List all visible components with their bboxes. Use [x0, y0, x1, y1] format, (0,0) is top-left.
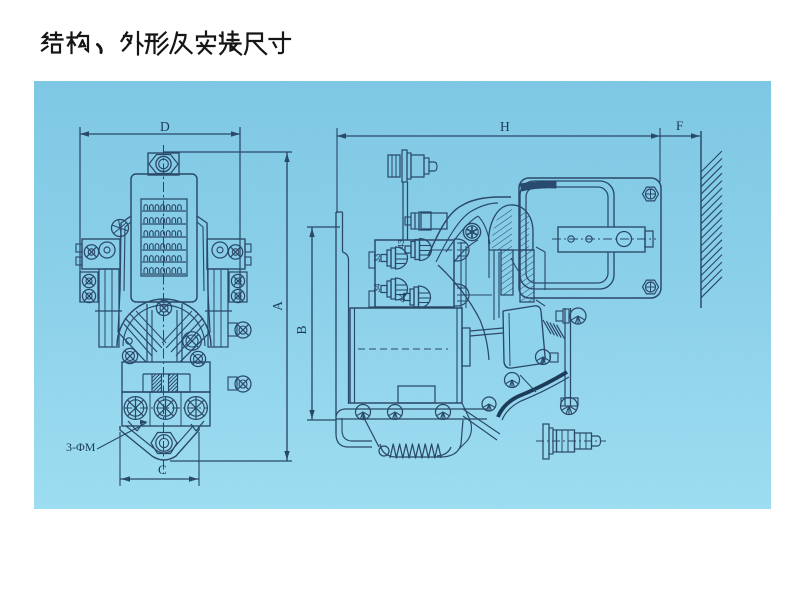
svg-text:33: 33	[373, 253, 382, 262]
svg-text:44: 44	[398, 293, 407, 302]
svg-text:34: 34	[373, 283, 382, 292]
svg-text:A: A	[270, 301, 285, 311]
svg-text:C: C	[158, 462, 167, 477]
svg-text:3-ΦM: 3-ΦM	[66, 440, 96, 454]
svg-text:43: 43	[397, 239, 406, 248]
svg-text:D: D	[160, 119, 170, 134]
svg-text:H: H	[500, 119, 510, 134]
svg-text:F: F	[676, 118, 683, 133]
svg-text:B: B	[294, 325, 309, 334]
